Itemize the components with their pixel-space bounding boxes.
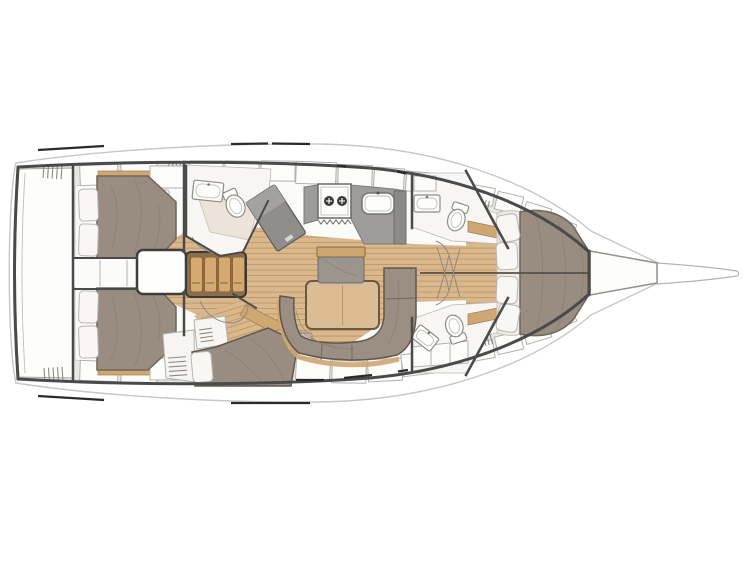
companionway-steps — [137, 250, 186, 294]
pillow — [78, 224, 98, 257]
sink — [192, 180, 224, 202]
rail-dash — [38, 396, 104, 400]
page — [0, 0, 745, 559]
pillow — [495, 213, 520, 243]
saloon-seat-back — [317, 247, 365, 257]
rail-dash — [231, 144, 268, 145]
fridge — [394, 191, 406, 244]
rail-dash — [398, 370, 408, 372]
pillow — [495, 303, 520, 333]
settee-cushion — [205, 257, 217, 292]
burner-icon — [337, 196, 347, 206]
rail-dash — [38, 146, 104, 150]
rail-dash — [337, 166, 346, 167]
burner-icon — [324, 196, 334, 206]
berth-side-panel — [163, 330, 195, 382]
settee-cushion — [219, 257, 231, 292]
stern-platform — [16, 168, 74, 378]
faucet-icon — [377, 192, 380, 195]
sink-counter — [192, 180, 224, 202]
pillow — [78, 189, 98, 222]
bowsprit — [657, 263, 739, 284]
settee-cushion — [191, 257, 203, 292]
settee-cushion — [233, 257, 245, 292]
counter-left — [304, 185, 318, 224]
pillow — [78, 291, 98, 324]
boat-floor-plan — [0, 0, 745, 559]
pillow — [78, 326, 98, 359]
settee-port — [186, 252, 246, 297]
corridor — [74, 259, 138, 287]
rail-dash — [272, 144, 310, 145]
pillow — [191, 351, 214, 383]
faucet-icon — [426, 196, 429, 199]
